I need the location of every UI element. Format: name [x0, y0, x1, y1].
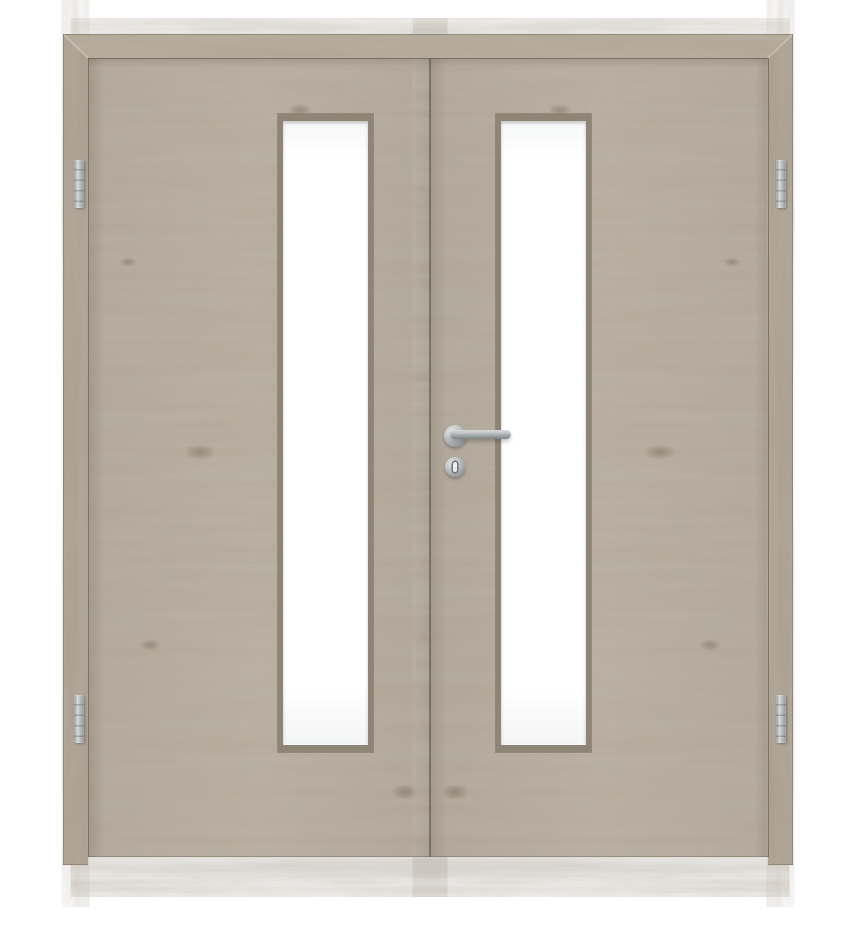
door-product-image	[0, 0, 858, 925]
door-leaf-right	[430, 58, 772, 857]
door-wood-rendering	[0, 0, 858, 925]
meeting-stile-seam	[429, 58, 431, 857]
lintel-drop-shadow	[88, 58, 768, 67]
hinge-left-bottom	[74, 695, 84, 743]
frame-lintel	[63, 34, 793, 58]
lever-handle	[450, 430, 511, 439]
key-escutcheon	[445, 457, 465, 477]
glass-panel-left	[278, 114, 373, 752]
hinge-right-top	[776, 160, 786, 208]
door-leaf-left	[88, 58, 430, 857]
hinge-right-bottom	[776, 695, 786, 743]
keyhole-icon	[453, 462, 457, 472]
hinge-left-top	[74, 160, 84, 208]
